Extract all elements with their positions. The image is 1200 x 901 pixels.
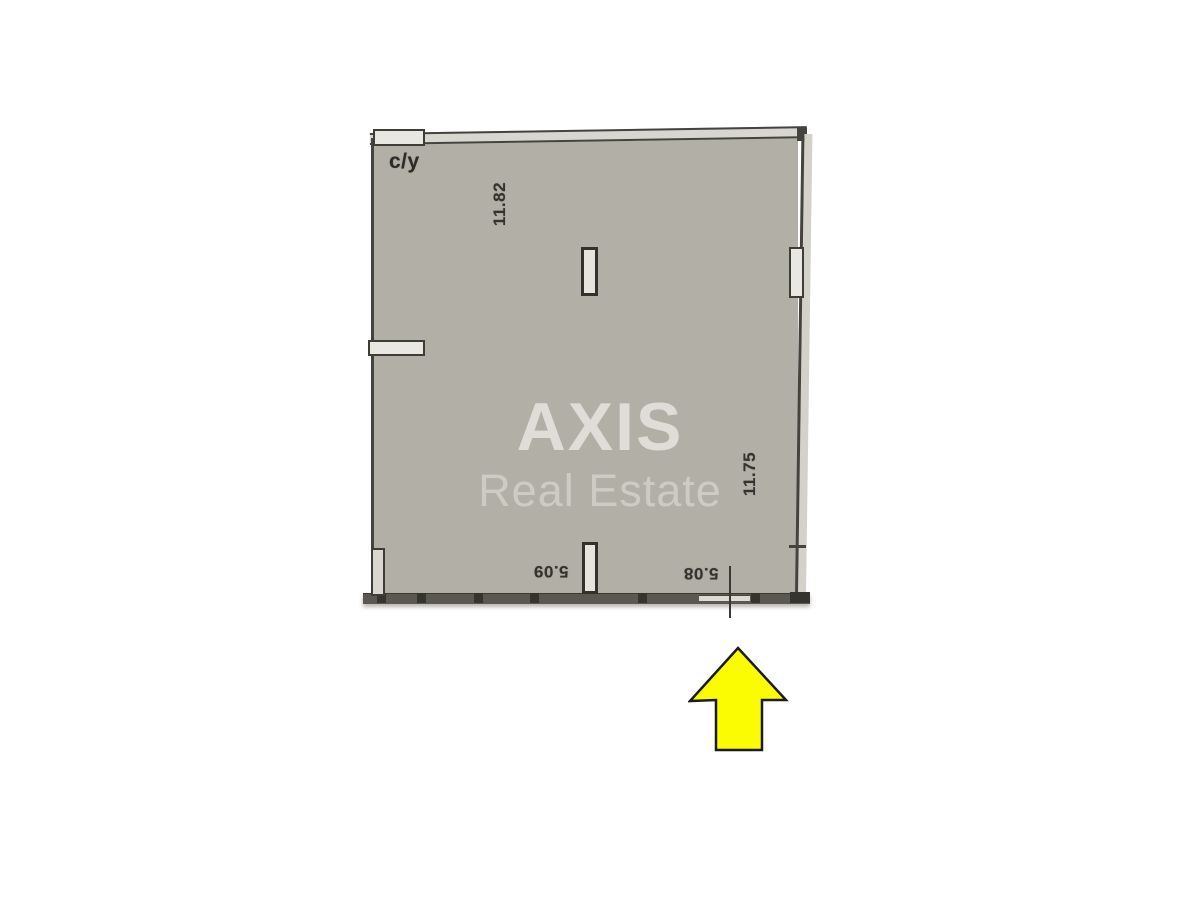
wall-stub-top-left <box>373 129 425 146</box>
up-arrow-shape <box>690 648 786 750</box>
wall-tick <box>638 593 647 603</box>
wall-tick <box>751 593 760 603</box>
dimension-label-right: 11.75 <box>741 442 759 506</box>
column-bottom <box>582 542 598 594</box>
wall-tick-right <box>789 545 806 548</box>
wall-tick <box>530 593 539 603</box>
wall-corner-bottom-right <box>790 592 810 603</box>
wall-left <box>371 138 374 597</box>
wall-stub-left <box>368 340 425 356</box>
wall-opening-bottom <box>699 595 750 601</box>
window-right-wall <box>789 247 804 298</box>
dimension-label-bottom-right: 5.08 <box>669 564 733 582</box>
floor-area <box>374 138 798 596</box>
floorplan-scene: c/y 11.82 11.75 5.09 5.08 AXIS Real Esta… <box>0 0 1200 901</box>
wall-tick <box>474 593 483 603</box>
up-arrow-icon <box>688 644 790 754</box>
room-label: c/y <box>389 150 420 174</box>
wall-tick <box>417 593 426 603</box>
pilaster-bottom-left <box>371 548 385 596</box>
dimension-label-bottom-left: 5.09 <box>519 562 583 580</box>
dimension-label-top: 11.82 <box>491 172 509 236</box>
column-center <box>581 247 598 296</box>
